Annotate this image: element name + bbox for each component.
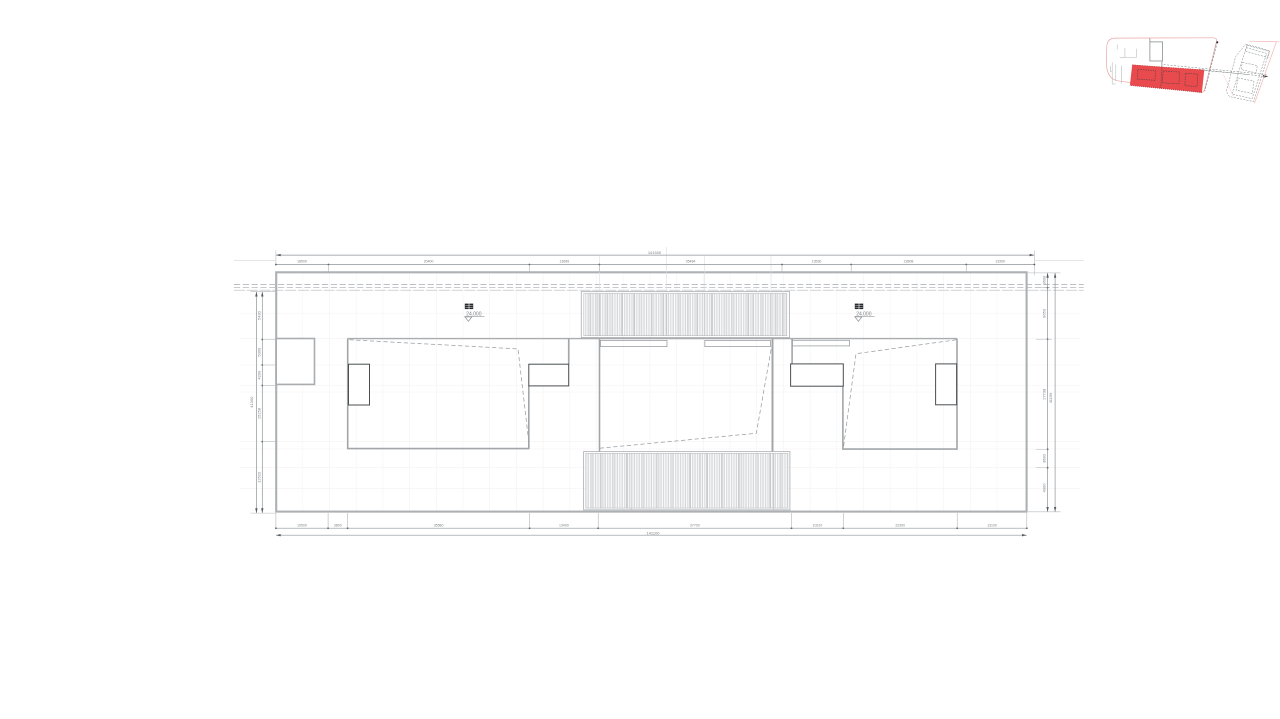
svg-text:37700: 37700 xyxy=(690,523,700,527)
svg-text:20400: 20400 xyxy=(424,259,434,263)
svg-text:35580: 35580 xyxy=(434,523,444,527)
svg-text:22300: 22300 xyxy=(895,523,905,527)
svg-text:5000: 5000 xyxy=(256,347,261,357)
svg-text:13300: 13300 xyxy=(995,259,1005,263)
svg-text:13100: 13100 xyxy=(987,523,997,527)
svg-text:18500: 18500 xyxy=(297,259,307,263)
svg-text:3600: 3600 xyxy=(1042,275,1047,285)
svg-text:13400: 13400 xyxy=(559,523,569,527)
svg-text:3800: 3800 xyxy=(334,523,342,527)
svg-text:27738: 27738 xyxy=(1042,388,1047,400)
svg-text:41159: 41159 xyxy=(1048,392,1053,404)
svg-text:9650: 9650 xyxy=(1042,308,1047,318)
svg-text:15258: 15258 xyxy=(256,407,261,419)
svg-text:13696: 13696 xyxy=(559,259,569,263)
svg-text:12520: 12520 xyxy=(256,471,261,483)
svg-text:10500: 10500 xyxy=(297,523,307,527)
svg-text:41300: 41300 xyxy=(249,396,254,408)
svg-text:35484: 35484 xyxy=(686,259,696,263)
svg-text:3680: 3680 xyxy=(1042,453,1047,463)
svg-text:5430: 5430 xyxy=(256,310,261,320)
svg-text:141500: 141500 xyxy=(648,250,662,255)
svg-text:13530: 13530 xyxy=(812,259,822,263)
svg-text:4200: 4200 xyxy=(256,370,261,380)
svg-text:10220: 10220 xyxy=(813,523,823,527)
svg-text:4900: 4900 xyxy=(1042,483,1047,493)
svg-text:22808: 22808 xyxy=(904,259,914,263)
svg-text:141100: 141100 xyxy=(646,530,660,535)
